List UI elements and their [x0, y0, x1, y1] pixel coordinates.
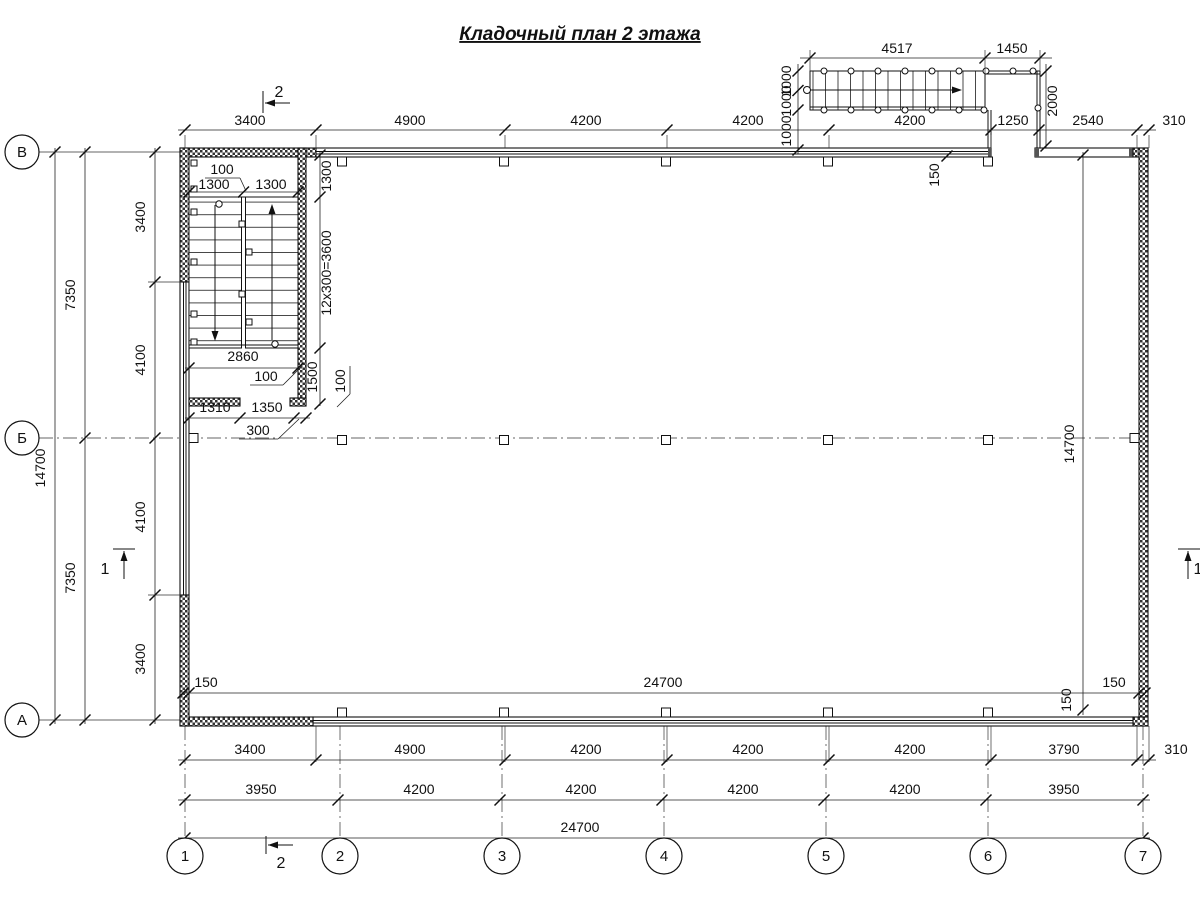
- dim-label: 1000: [778, 85, 794, 116]
- wall-top-window-band: [316, 148, 991, 157]
- dim-label: 2540: [1072, 112, 1103, 128]
- dim-label: 150: [1102, 674, 1126, 690]
- dim-label: 4200: [727, 781, 758, 797]
- axis-row-label: В: [17, 144, 27, 161]
- dim-label: 1450: [996, 40, 1027, 56]
- wall-right: [1139, 148, 1148, 726]
- axis-col-label: 5: [822, 848, 830, 865]
- dim-label: 150: [1058, 688, 1074, 712]
- dim-label: 3400: [132, 643, 148, 674]
- dim-label: 4200: [570, 741, 601, 757]
- bottom-dims: 3400 4900 4200 4200 4200 3790 310 3950 4…: [178, 726, 1188, 844]
- axis-col-label: 1: [181, 848, 189, 865]
- section-label: 1: [101, 561, 110, 578]
- dim-label: 2000: [1044, 85, 1060, 116]
- section-arrow-icon: [268, 842, 278, 849]
- axis-col-label: 3: [498, 848, 506, 865]
- section-arrow-icon: [121, 551, 128, 561]
- dim-label: 4900: [394, 741, 425, 757]
- dim-label: 1250: [997, 112, 1028, 128]
- dim-label: 3950: [245, 781, 276, 797]
- dim-label: 1310: [199, 399, 230, 415]
- wall-top-stairwell: [180, 148, 316, 157]
- dim-label: 100: [254, 368, 278, 384]
- dim-label: 12x300=3600: [318, 230, 334, 315]
- axis-col-label: 4: [660, 848, 668, 865]
- wall-left-bottom: [180, 595, 189, 726]
- wall-bottom-window-band: [313, 717, 1133, 726]
- dim-label: 24700: [644, 674, 683, 690]
- dim-label: 1500: [304, 361, 320, 392]
- dim-label: 4517: [881, 40, 912, 56]
- dim-label: 3400: [132, 201, 148, 232]
- dim-label: 4200: [894, 741, 925, 757]
- drawing-title: Кладочный план 2 этажа: [459, 24, 701, 45]
- dim-label: 1350: [251, 399, 282, 415]
- dim-label: 4200: [403, 781, 434, 797]
- section-label: 2: [275, 84, 284, 101]
- dim-label: 4100: [132, 344, 148, 375]
- dim-label: 150: [194, 674, 218, 690]
- dim-label: 4200: [565, 781, 596, 797]
- axis-row-label: А: [17, 712, 27, 729]
- axis-col-label: 2: [336, 848, 344, 865]
- dim-label: 300: [246, 422, 270, 438]
- dim-label: 14700: [1061, 424, 1077, 463]
- dim-label: 3790: [1048, 741, 1079, 757]
- dim-label: 4200: [732, 112, 763, 128]
- section-label: 2: [277, 855, 286, 872]
- dim-label: 7350: [62, 279, 78, 310]
- wall-left-top: [180, 148, 189, 282]
- dim-label: 4200: [894, 112, 925, 128]
- dim-label: 4100: [132, 501, 148, 532]
- dim-label: 1300: [198, 176, 229, 192]
- dim-label: 7350: [62, 562, 78, 593]
- dim-label: 1300: [255, 176, 286, 192]
- wall-top-right-band: [1035, 148, 1133, 157]
- dim-label: 310: [1162, 112, 1186, 128]
- dim-label: 3950: [1048, 781, 1079, 797]
- dim-label: 4900: [394, 112, 425, 128]
- top-dim-row: 3400 4900 4200 4200 4200 1250 2540 310: [178, 112, 1186, 148]
- dim-label: 150: [926, 163, 942, 187]
- escape-stair: [804, 68, 1042, 148]
- dim-label: 4200: [570, 112, 601, 128]
- wall-bottom-left: [180, 717, 313, 726]
- section-arrow-icon: [265, 100, 275, 107]
- wall-left-window-band: [180, 282, 189, 595]
- dim-label: 310: [1164, 741, 1188, 757]
- axis-row-label: Б: [17, 430, 27, 447]
- axis-col-label: 7: [1139, 848, 1147, 865]
- section-label: 1: [1194, 561, 1200, 578]
- dim-label: 4200: [732, 741, 763, 757]
- dim-label: 100: [332, 369, 348, 393]
- dim-label: 100: [210, 161, 234, 177]
- dim-label: 2860: [227, 348, 258, 364]
- dim-label: 14700: [32, 448, 48, 487]
- section-arrow-icon: [1185, 551, 1192, 561]
- dim-label: 3400: [234, 741, 265, 757]
- dim-label: 24700: [561, 819, 600, 835]
- dim-label: 1300: [318, 160, 334, 191]
- axis-col-label: 6: [984, 848, 992, 865]
- dim-label: 4200: [889, 781, 920, 797]
- dim-label: 3400: [234, 112, 265, 128]
- masonry-plan-canvas: Кладочный план 2 этажа: [0, 0, 1200, 900]
- dim-label: 1000: [778, 115, 794, 146]
- left-dims: 14700 7350 7350 3400 4100 4100 3400: [32, 147, 182, 726]
